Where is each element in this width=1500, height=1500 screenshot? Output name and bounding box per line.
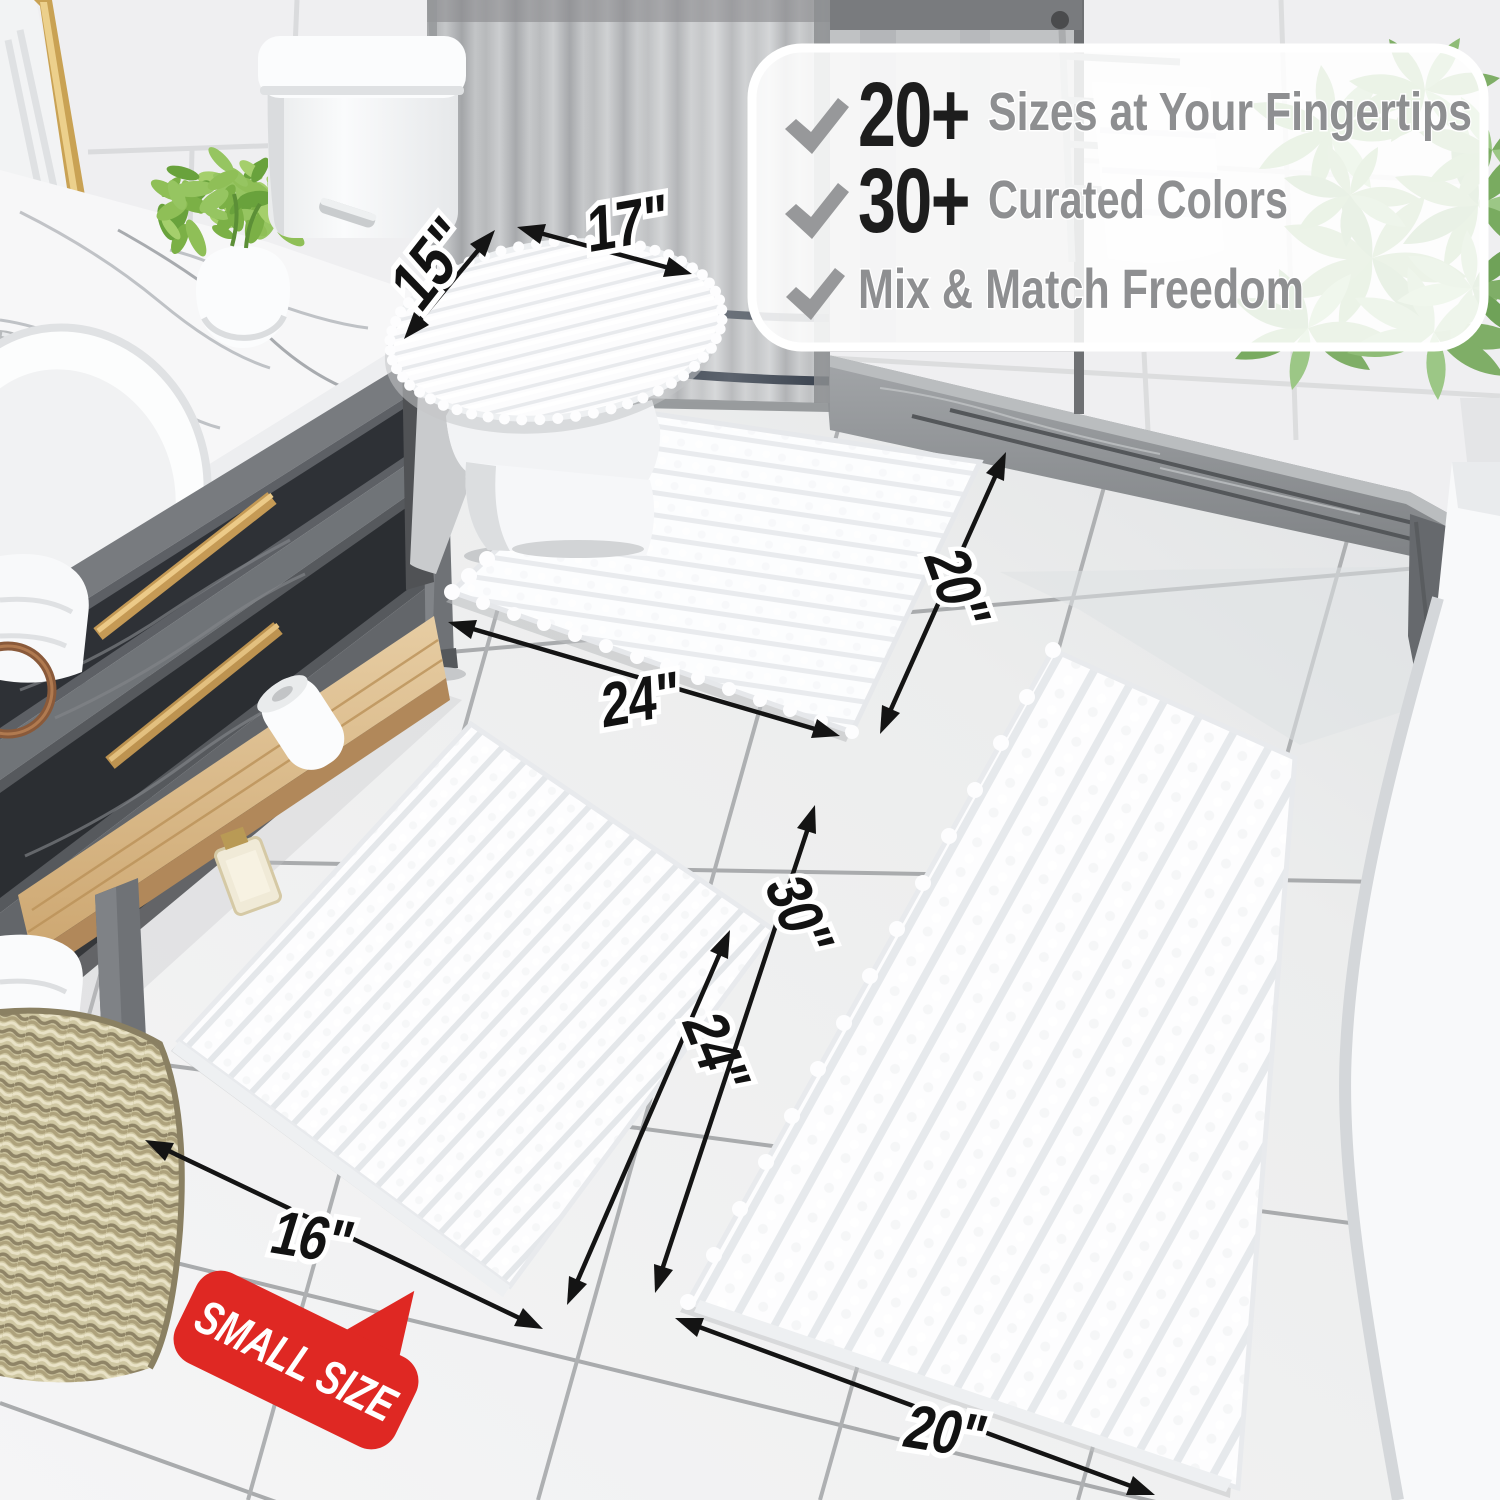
- svg-text:30+: 30+: [858, 150, 969, 252]
- svg-text:24": 24": [600, 658, 679, 742]
- svg-text:17": 17": [586, 181, 668, 266]
- svg-text:Curated Colors: Curated Colors: [988, 170, 1288, 230]
- svg-text:Sizes at Your Fingertips: Sizes at Your Fingertips: [988, 82, 1472, 142]
- svg-text:Mix & Match Freedom: Mix & Match Freedom: [858, 257, 1304, 320]
